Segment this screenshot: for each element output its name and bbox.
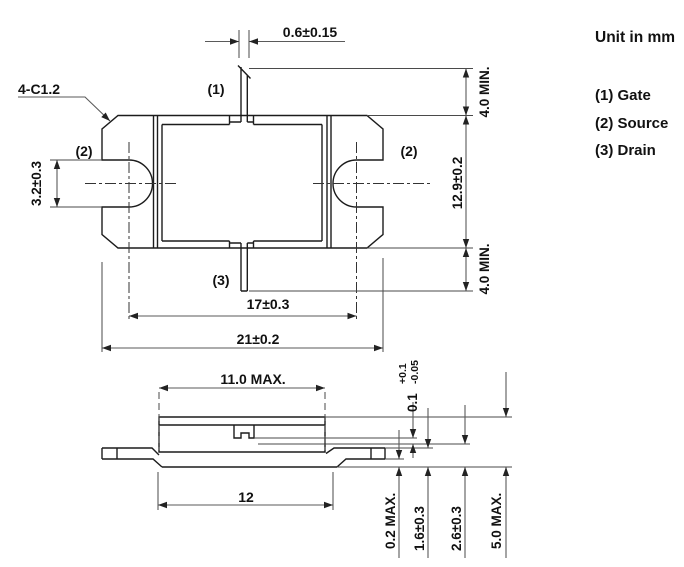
dim-lead-height: 1.6±0.3 [412, 506, 427, 551]
pin-label-gate: (1) [207, 81, 224, 97]
side-left-lead [102, 448, 162, 467]
dim-mounting-hole-pitch: 17±0.3 [247, 296, 290, 312]
pin-label-drain: (3) [212, 272, 229, 288]
dim-flange-length: 21±0.2 [237, 331, 280, 347]
side-body [159, 417, 325, 452]
annotations: 4-C1.2 0.6±0.15 (1) (2) (2) (3) 4.0 MIN.… [18, 24, 675, 551]
dim-gate-lead-width: 0.6±0.15 [283, 24, 338, 40]
dim-lead-step-tol-plus: +0.1 [397, 363, 409, 384]
pin-label-source-right: (2) [400, 143, 417, 159]
legend-source: (2) Source [595, 115, 668, 132]
chamfer-callout-label: 4-C1.2 [18, 81, 60, 97]
legend-gate: (1) Gate [595, 87, 651, 104]
dim-lead-step-value: 0.1 [405, 393, 420, 412]
units-note: Unit in mm [595, 29, 675, 46]
dim-overall-height-max: 5.0 MAX. [489, 493, 504, 549]
top-view [85, 66, 430, 323]
dim-mounting-slot-width: 3.2±0.3 [29, 161, 44, 206]
dim-lead-step-tol-minus: -0.05 [409, 360, 421, 384]
package-outline-drawing: 4-C1.2 0.6±0.15 (1) (2) (2) (3) 4.0 MIN.… [0, 0, 684, 567]
dim-lead-standoff-max: 0.2 MAX. [383, 493, 398, 549]
slot-centerlines [85, 142, 430, 322]
side-lead-pocket [234, 425, 254, 438]
dim-flange-bottom-length: 12 [238, 489, 254, 505]
dim-gate-lead-length-min: 4.0 MIN. [477, 66, 492, 117]
drawing-canvas: 4-C1.2 0.6±0.15 (1) (2) (2) (3) 4.0 MIN.… [0, 0, 684, 567]
dim-drain-lead-length-min: 4.0 MIN. [477, 243, 492, 294]
legend-drain: (3) Drain [595, 142, 656, 159]
side-view [102, 417, 385, 467]
dim-body-depth: 12.9±0.2 [450, 157, 465, 209]
gate-lead [238, 66, 251, 123]
body-step-lines [154, 116, 332, 249]
side-right-lead [326, 448, 385, 467]
cap-outline [162, 116, 322, 249]
drain-lead [241, 243, 247, 291]
dim-seating-plane-height: 2.6±0.3 [449, 506, 464, 551]
flange-outline [102, 116, 383, 249]
pin-label-source-left: (2) [75, 143, 92, 159]
dim-cap-length-max: 11.0 MAX. [220, 371, 285, 387]
dimension-lines [18, 30, 512, 558]
